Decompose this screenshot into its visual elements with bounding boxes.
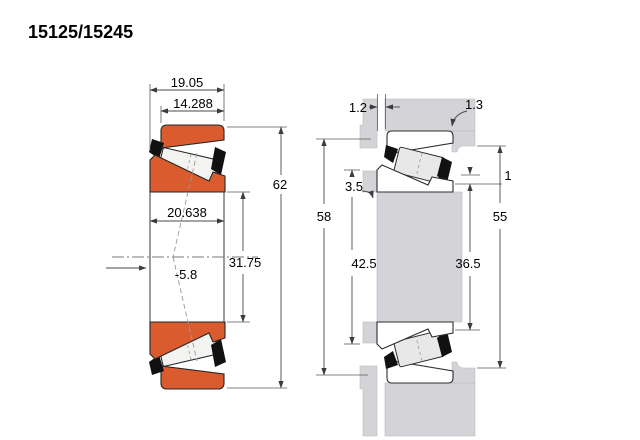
housing-bottom — [385, 383, 475, 436]
shaft-shoulder-top — [363, 171, 377, 192]
dim-cup-width: 14.288 — [161, 96, 224, 123]
dim-label: 1 — [504, 168, 511, 183]
lower-half — [149, 322, 226, 389]
cup-outer-ring — [161, 366, 224, 389]
shaft-shoulder-bottom — [363, 322, 377, 343]
dim-label: 1.3 — [465, 97, 483, 112]
housing-cover-bottom — [360, 366, 377, 436]
dim-label: 55 — [493, 209, 507, 224]
dim-label: -5.8 — [175, 267, 197, 282]
dim-label: 36.5 — [455, 256, 480, 271]
bearing-datasheet-figure: 15125/15245 — [0, 0, 640, 440]
dim-housing-shoulder: 55 — [477, 146, 507, 368]
housing-top — [385, 99, 475, 131]
dim-label: 42.5 — [351, 256, 376, 271]
dim-label: 31.75 — [229, 255, 262, 270]
mounted-bearing-upper — [377, 131, 453, 192]
dim-cone-width: 20.638 — [150, 205, 224, 221]
dim-bore-diameter: 31.75 — [227, 192, 261, 322]
shaft — [377, 192, 462, 322]
page-title: 15125/15245 — [28, 22, 133, 42]
cross-section-view: 19.05 14.288 62 20.638 31.75 — [106, 75, 287, 389]
upper-half — [149, 125, 226, 192]
dim-label: 1.2 — [349, 100, 367, 115]
housing-shoulder-top — [452, 131, 475, 152]
dim-label: 19.05 — [171, 75, 204, 90]
dim-label: 3.5 — [345, 179, 363, 194]
dim-load-center: -5.8 — [106, 267, 197, 282]
dim-label: 62 — [273, 177, 287, 192]
housing-shoulder-bottom — [452, 362, 475, 383]
mounted-bearing-lower — [377, 322, 453, 383]
drawing-canvas: 15125/15245 — [0, 0, 640, 440]
dim-label: 58 — [317, 209, 331, 224]
dim-backing-clearance: 1 — [455, 167, 512, 184]
dim-label: 14.288 — [173, 96, 213, 111]
mounting-view: 1.2 1.3 58 42.5 3.5 — [316, 94, 512, 436]
cup-outer-ring — [161, 125, 224, 148]
dim-label: 20.638 — [167, 205, 207, 220]
